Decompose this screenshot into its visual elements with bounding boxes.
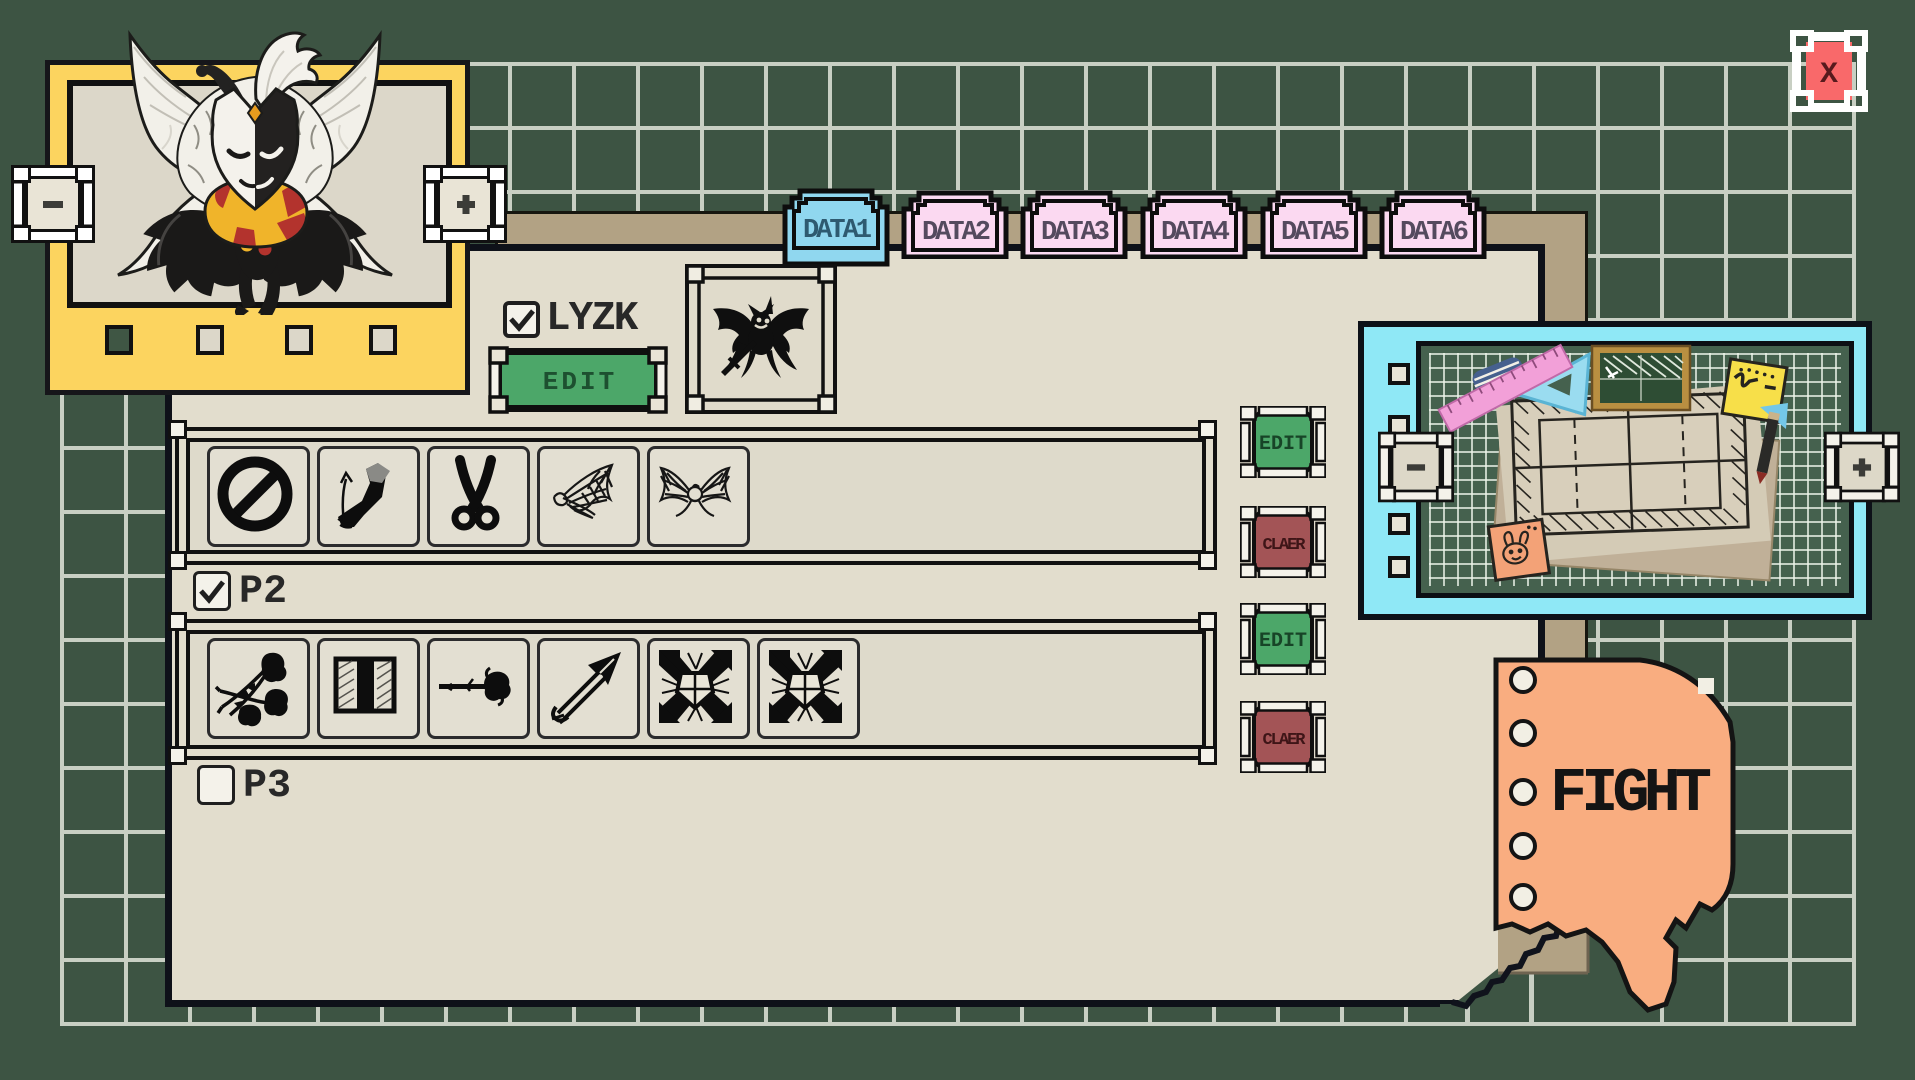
svg-text:FIGHT: FIGHT [1550,758,1711,829]
svg-text:DATA3: DATA3 [1041,218,1109,248]
svg-text:EDIT: EDIT [543,367,617,397]
svg-text:EDIT: EDIT [1259,630,1307,653]
svg-text:EDIT: EDIT [1259,433,1307,456]
svg-text:DATA1: DATA1 [803,216,872,246]
svg-text:DATA4: DATA4 [1161,218,1230,248]
svg-text:DATA6: DATA6 [1400,218,1468,248]
svg-text:DATA2: DATA2 [922,218,990,248]
svg-text:X: X [1820,58,1838,92]
svg-text:CLAER: CLAER [1262,731,1306,750]
svg-text:DATA5: DATA5 [1281,218,1349,248]
svg-text:CLAER: CLAER [1262,536,1306,555]
